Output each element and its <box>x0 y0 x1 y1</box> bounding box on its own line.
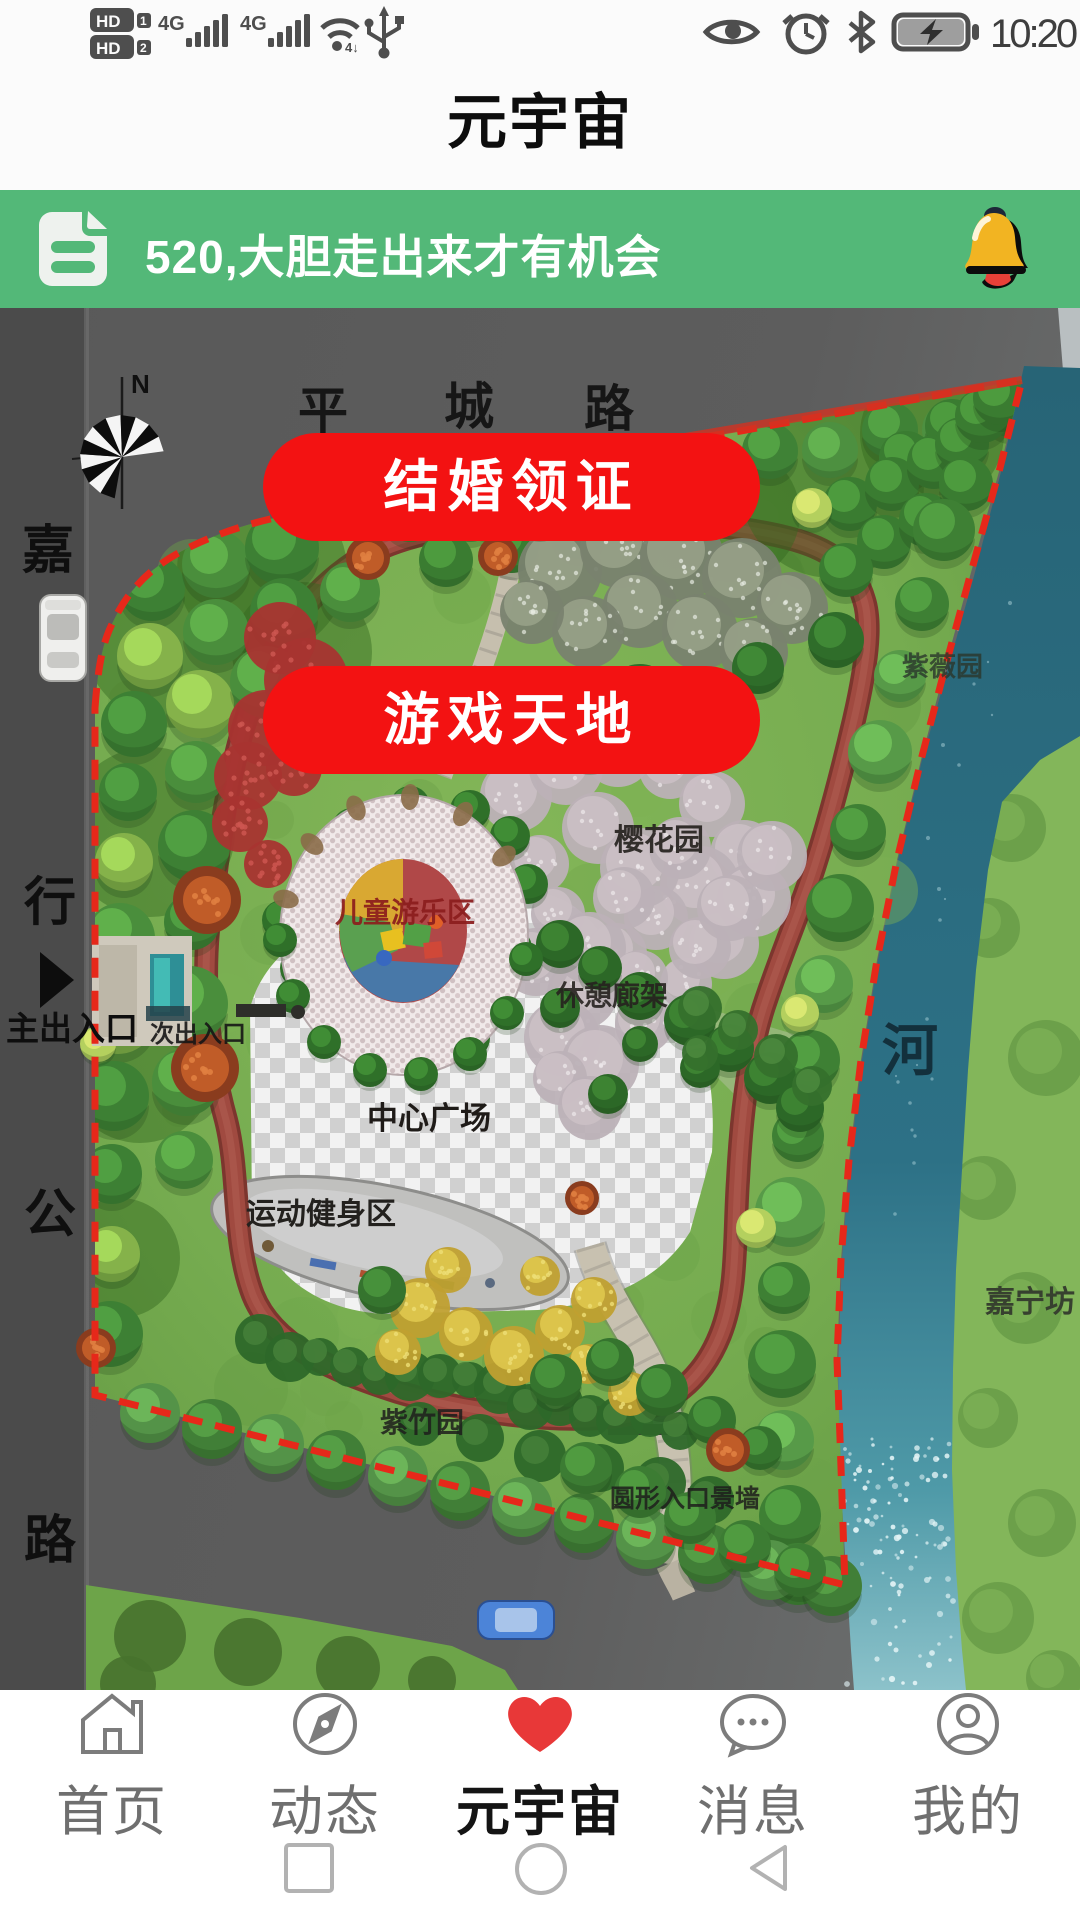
svg-text:儿童游乐区: 儿童游乐区 <box>335 896 475 928</box>
svg-text:次出入口: 次出入口 <box>150 1021 246 1048</box>
svg-text:休憩廊架: 休憩廊架 <box>555 979 668 1011</box>
svg-text:N: N <box>131 369 150 399</box>
svg-text:行: 行 <box>24 874 76 932</box>
svg-text:1: 1 <box>140 14 147 28</box>
svg-text:樱花园: 樱花园 <box>614 824 704 857</box>
svg-text:主出入口: 主出入口 <box>6 1010 138 1047</box>
svg-text:紫薇园: 紫薇园 <box>902 652 983 682</box>
svg-text:10:20: 10:20 <box>990 12 1077 56</box>
svg-text:HD: HD <box>96 39 121 58</box>
svg-text:运动健身区: 运动健身区 <box>246 1198 396 1231</box>
svg-text:河: 河 <box>882 1019 938 1082</box>
svg-text:2: 2 <box>140 41 147 55</box>
svg-text:公: 公 <box>24 1186 76 1244</box>
svg-text:城: 城 <box>444 379 494 435</box>
svg-text:路: 路 <box>24 1512 77 1570</box>
svg-text:4G: 4G <box>158 13 185 35</box>
svg-text:4↓: 4↓ <box>345 40 359 55</box>
svg-text:平: 平 <box>298 383 348 439</box>
svg-text:路: 路 <box>584 381 635 437</box>
svg-text:嘉宁坊: 嘉宁坊 <box>985 1285 1075 1319</box>
svg-text:中心广场: 中心广场 <box>367 1101 491 1136</box>
svg-text:4G: 4G <box>240 13 267 35</box>
svg-text:嘉: 嘉 <box>22 522 74 580</box>
svg-text:HD: HD <box>96 12 121 31</box>
svg-text:紫竹园: 紫竹园 <box>380 1407 464 1438</box>
svg-text:圆形入口景墙: 圆形入口景墙 <box>610 1485 760 1513</box>
